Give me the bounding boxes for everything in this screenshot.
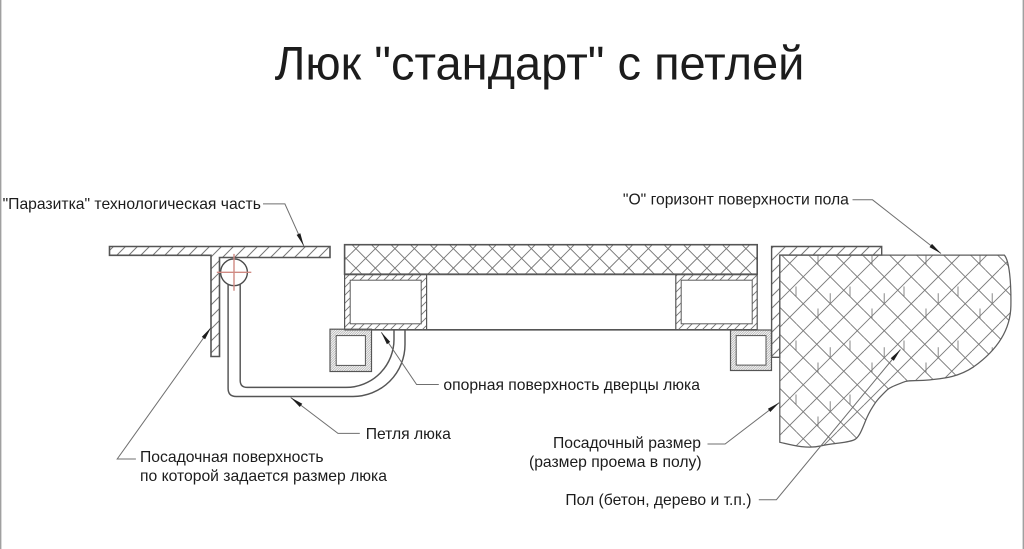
svg-text:Пол (бетон, дерево и т.п.): Пол (бетон, дерево и т.п.) bbox=[565, 492, 751, 509]
svg-text:(размер проема в полу): (размер проема в полу) bbox=[529, 454, 702, 471]
svg-text:Посадочная поверхность: Посадочная поверхность bbox=[140, 449, 324, 466]
svg-text:Посадочный размер: Посадочный размер bbox=[553, 435, 701, 452]
svg-text:"Паразитка" технологическая ча: "Паразитка" технологическая часть bbox=[3, 196, 261, 213]
svg-text:"О" горизонт поверхности пола: "О" горизонт поверхности пола bbox=[623, 191, 849, 208]
svg-text:Петля люка: Петля люка bbox=[366, 426, 451, 443]
svg-text:Люк "стандарт" с петлей: Люк "стандарт" с петлей bbox=[275, 37, 805, 90]
svg-text:опорная поверхность дверцы люк: опорная поверхность дверцы люка bbox=[443, 377, 700, 394]
svg-text:по которой задается размер люк: по которой задается размер люка bbox=[140, 468, 387, 485]
